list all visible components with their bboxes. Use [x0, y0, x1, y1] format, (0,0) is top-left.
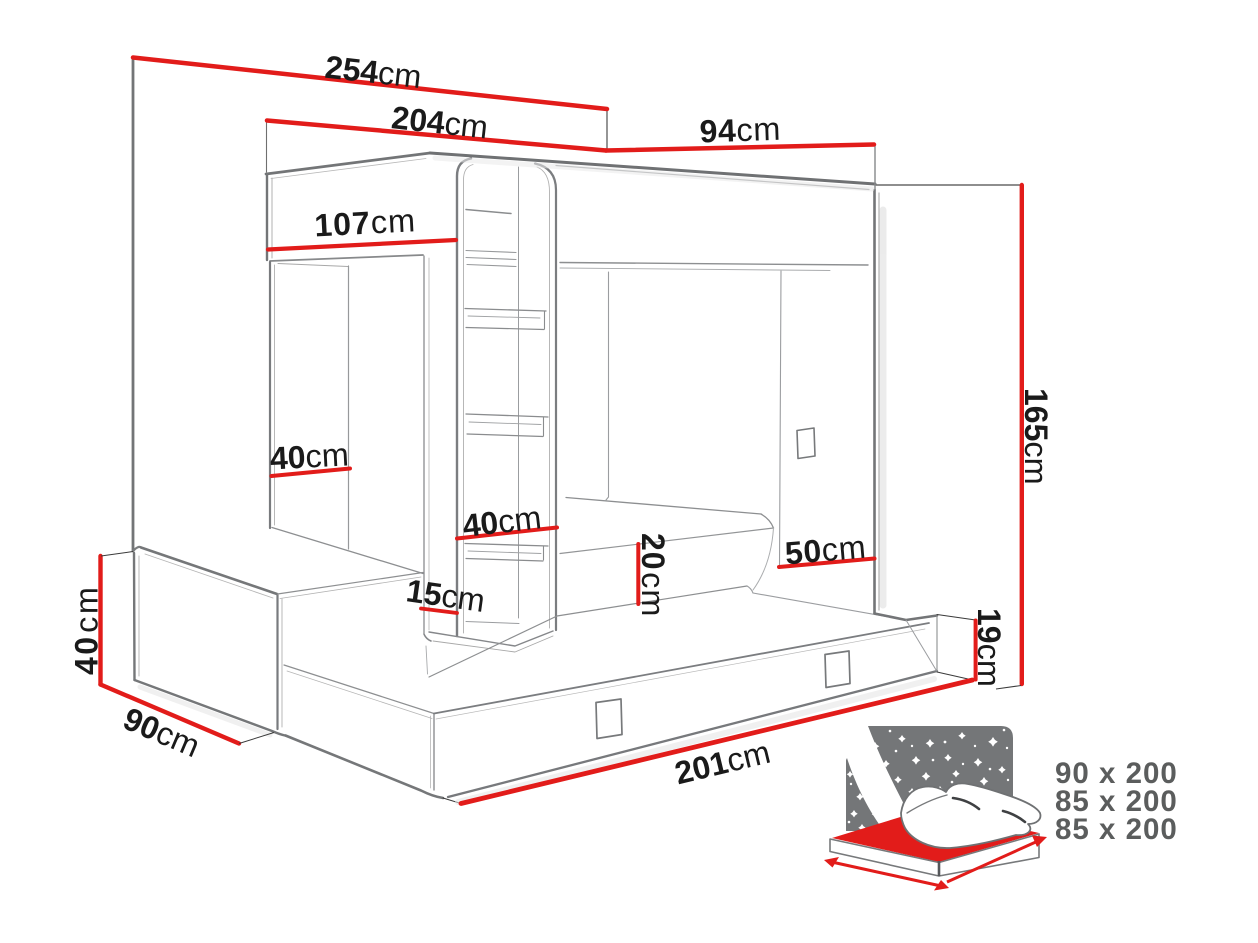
svg-text:165cm: 165cm — [1018, 388, 1054, 485]
svg-text:85 x 200: 85 x 200 — [1055, 813, 1178, 846]
svg-text:40cm: 40cm — [269, 436, 350, 476]
svg-text:20cm: 20cm — [635, 533, 671, 617]
svg-text:107cm: 107cm — [313, 202, 416, 243]
svg-text:50cm: 50cm — [783, 529, 867, 572]
svg-text:40cm: 40cm — [69, 585, 105, 675]
svg-text:94cm: 94cm — [699, 111, 782, 150]
svg-text:19cm: 19cm — [971, 608, 1007, 687]
